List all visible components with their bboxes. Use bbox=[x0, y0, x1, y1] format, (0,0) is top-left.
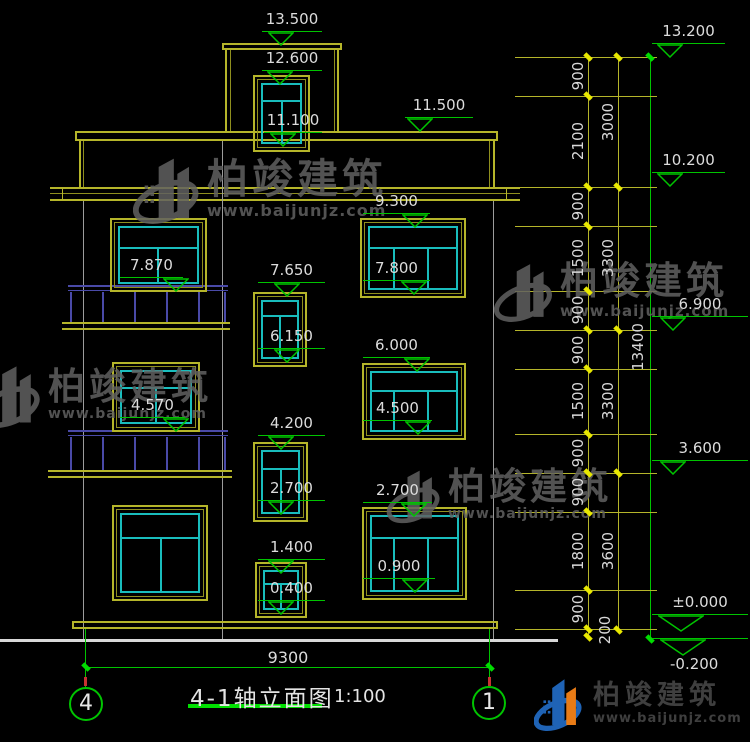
label: 1.400 bbox=[258, 539, 325, 556]
triangle-symbol-icon bbox=[274, 283, 300, 297]
label: 柏竣建筑 bbox=[207, 158, 387, 201]
label: 6.150 bbox=[258, 328, 325, 345]
line bbox=[658, 45, 682, 57]
line bbox=[70, 292, 72, 322]
watermark: 柏竣建筑 www.baijunjz.com bbox=[133, 150, 387, 228]
watermark-logo-icon bbox=[494, 256, 556, 326]
elev-marker: 12.600 bbox=[262, 50, 322, 67]
label: 4.570 bbox=[120, 397, 185, 414]
line bbox=[198, 292, 200, 322]
text-block: 柏竣建筑 www.baijunjz.com bbox=[207, 158, 387, 220]
axis-bubble-4: 4 bbox=[69, 687, 103, 721]
text-block: 柏竣建筑 www.baijunjz.com bbox=[593, 681, 742, 726]
line bbox=[72, 627, 498, 629]
line bbox=[406, 422, 430, 434]
line bbox=[403, 215, 427, 227]
line bbox=[588, 57, 589, 637]
line bbox=[269, 33, 293, 45]
line bbox=[84, 677, 87, 686]
dim-value: 900 bbox=[569, 478, 587, 507]
triangle-symbol-icon bbox=[660, 461, 686, 475]
line bbox=[543, 706, 546, 709]
line bbox=[408, 119, 432, 131]
dimension-tick bbox=[613, 52, 623, 62]
dimension-tick bbox=[81, 662, 91, 672]
line bbox=[62, 187, 63, 201]
line bbox=[164, 419, 188, 431]
label: 12.600 bbox=[262, 50, 322, 67]
label: -0.200 bbox=[670, 656, 718, 673]
label: 4.500 bbox=[363, 400, 432, 417]
line bbox=[496, 621, 498, 629]
line bbox=[225, 50, 227, 131]
line bbox=[658, 174, 682, 186]
elev-marker: 6.150 bbox=[258, 328, 325, 345]
elev-marker: 6.000 bbox=[363, 337, 430, 354]
elev-marker: 9.300 bbox=[363, 193, 430, 210]
dim-value: 900 bbox=[569, 595, 587, 624]
line bbox=[159, 159, 174, 218]
dim-value: 900 bbox=[569, 192, 587, 221]
triangle-symbol-icon bbox=[660, 317, 686, 331]
elev-marker: 0.900 bbox=[363, 558, 435, 575]
line bbox=[83, 141, 84, 188]
label: 柏竣建筑 bbox=[593, 681, 742, 711]
dim-value: 3000 bbox=[599, 103, 617, 141]
line bbox=[489, 141, 490, 188]
bottom-dim-value: 9300 bbox=[258, 648, 318, 667]
drawing-scale: 1:100 bbox=[334, 686, 386, 707]
level-marker: 3.600 bbox=[652, 440, 748, 457]
dimension-tick bbox=[583, 429, 593, 439]
triangle-symbol-icon bbox=[268, 501, 294, 515]
line bbox=[372, 390, 456, 392]
line bbox=[340, 43, 342, 50]
triangle-symbol-icon bbox=[270, 133, 296, 147]
dimension-tick bbox=[583, 632, 593, 642]
label: 2.700 bbox=[258, 480, 325, 497]
label: 10.200 bbox=[652, 152, 725, 169]
line bbox=[75, 131, 77, 141]
elev-marker: 1.400 bbox=[258, 539, 325, 556]
line bbox=[151, 193, 155, 197]
line bbox=[79, 141, 81, 188]
line bbox=[618, 57, 619, 630]
label: 6.000 bbox=[363, 337, 430, 354]
dimension-tick bbox=[583, 52, 593, 62]
line bbox=[68, 435, 228, 436]
label: 7.800 bbox=[363, 260, 430, 277]
dim-value: 200 bbox=[596, 616, 614, 645]
dimension-tick bbox=[645, 52, 655, 62]
dimension-tick bbox=[645, 634, 655, 644]
triangle-symbol-icon bbox=[405, 421, 431, 435]
triangle-symbol-icon bbox=[657, 173, 683, 187]
line bbox=[533, 271, 543, 316]
line bbox=[164, 279, 188, 291]
line bbox=[166, 437, 168, 470]
elev-marker: 11.100 bbox=[264, 112, 322, 129]
window-glass bbox=[118, 226, 199, 284]
line bbox=[2, 366, 16, 422]
dim-value: 900 bbox=[569, 336, 587, 365]
line bbox=[70, 437, 72, 470]
label: 0.900 bbox=[363, 558, 435, 575]
line bbox=[151, 200, 155, 204]
line bbox=[269, 561, 293, 573]
label: 1 bbox=[482, 690, 496, 715]
dim-value: 3300 bbox=[599, 239, 617, 277]
elev-marker: 0.400 bbox=[258, 580, 325, 597]
line bbox=[20, 374, 31, 422]
line bbox=[269, 602, 293, 614]
label: 0.400 bbox=[258, 580, 325, 597]
line bbox=[102, 292, 104, 322]
watermark-logo-icon bbox=[0, 358, 44, 432]
elev-marker: 11.500 bbox=[405, 97, 473, 114]
line bbox=[650, 57, 651, 639]
line bbox=[337, 50, 339, 131]
line bbox=[224, 292, 226, 322]
triangle-symbol-icon bbox=[402, 579, 428, 593]
triangle-symbol-icon bbox=[658, 615, 704, 632]
dimension-tick bbox=[583, 182, 593, 192]
line bbox=[269, 502, 293, 514]
dimension-tick bbox=[485, 662, 495, 672]
label: 13.200 bbox=[652, 23, 725, 40]
company-logo: 柏竣建筑 www.baijunjz.com bbox=[534, 674, 742, 732]
line bbox=[496, 131, 498, 141]
line bbox=[548, 711, 551, 714]
ground-line bbox=[0, 639, 558, 642]
triangle-symbol-icon bbox=[401, 503, 427, 517]
label: 7.870 bbox=[120, 257, 183, 274]
label: 11.500 bbox=[405, 97, 473, 114]
elev-marker: 4.570 bbox=[120, 397, 185, 414]
elev-marker: 7.650 bbox=[258, 262, 325, 279]
line bbox=[403, 580, 427, 592]
dim-value: 1500 bbox=[569, 382, 587, 420]
line bbox=[222, 43, 224, 50]
line bbox=[48, 476, 232, 478]
line bbox=[62, 328, 230, 330]
line bbox=[543, 700, 546, 703]
line bbox=[506, 187, 507, 201]
triangle-symbol-icon bbox=[274, 349, 300, 363]
triangle-symbol-icon bbox=[402, 214, 428, 228]
watermark-logo-icon bbox=[133, 150, 203, 228]
elev-marker: 7.800 bbox=[363, 260, 430, 277]
triangle-symbol-icon bbox=[401, 281, 427, 295]
line bbox=[62, 322, 230, 324]
line bbox=[659, 616, 703, 631]
line bbox=[402, 282, 426, 294]
dim-value: 3300 bbox=[599, 382, 617, 420]
elev-marker: 2.700 bbox=[363, 482, 432, 499]
line bbox=[517, 264, 530, 317]
label: ±0.000 bbox=[652, 594, 748, 611]
line bbox=[145, 200, 149, 204]
level-marker: 10.200 bbox=[652, 152, 725, 169]
triangle-symbol-icon bbox=[268, 601, 294, 615]
window-left-1f bbox=[112, 505, 208, 601]
line bbox=[102, 437, 104, 470]
dimension-tick bbox=[613, 325, 623, 335]
line bbox=[548, 706, 551, 709]
label: 4.200 bbox=[258, 415, 325, 432]
triangle-symbol-icon bbox=[163, 278, 189, 292]
triangle-symbol-icon bbox=[163, 418, 189, 432]
elev-marker: 7.870 bbox=[120, 257, 183, 274]
dim-value: 3600 bbox=[599, 532, 617, 570]
dim-value: 2100 bbox=[569, 122, 587, 160]
window-left-3f bbox=[110, 218, 207, 292]
dimension-tick bbox=[583, 221, 593, 231]
dim-value: 900 bbox=[569, 62, 587, 91]
label: www.baijunjz.com bbox=[207, 201, 387, 220]
line bbox=[405, 359, 429, 371]
dimension-tick bbox=[583, 364, 593, 374]
elev-marker: 13.500 bbox=[262, 11, 322, 28]
line bbox=[145, 186, 149, 190]
line bbox=[548, 700, 551, 703]
axis-bubble-1: 1 bbox=[472, 686, 506, 720]
line bbox=[230, 50, 231, 131]
triangle-symbol-icon bbox=[657, 44, 683, 58]
line bbox=[543, 711, 546, 714]
line bbox=[134, 292, 136, 322]
line bbox=[160, 537, 162, 591]
drawing-title: 4-1轴立面图 bbox=[190, 679, 334, 713]
dimension-tick bbox=[583, 91, 593, 101]
line bbox=[661, 318, 685, 330]
dimension-tick bbox=[613, 182, 623, 192]
dim-value: 1500 bbox=[569, 239, 587, 277]
label: 2.700 bbox=[363, 482, 432, 499]
elev-marker: 2.700 bbox=[258, 480, 325, 497]
line bbox=[552, 679, 564, 725]
line bbox=[145, 193, 149, 197]
line bbox=[661, 640, 705, 655]
level-marker: 13.200 bbox=[652, 23, 725, 40]
line bbox=[661, 462, 685, 474]
dimension-tick bbox=[583, 585, 593, 595]
line bbox=[566, 687, 576, 725]
dim-value-overall: 13400 bbox=[629, 323, 647, 371]
line bbox=[224, 437, 226, 470]
elevation-drawing: 13.500 12.600 11.100 11.500 9.300 7.870 … bbox=[0, 0, 750, 742]
triangle-symbol-icon bbox=[268, 436, 294, 450]
line bbox=[72, 621, 74, 629]
triangle-symbol-icon bbox=[268, 560, 294, 574]
label: 13.500 bbox=[262, 11, 322, 28]
line bbox=[271, 134, 295, 146]
label: 7.650 bbox=[258, 262, 325, 279]
line bbox=[268, 72, 292, 84]
line bbox=[402, 504, 426, 516]
dimension-tick bbox=[613, 625, 623, 635]
label: 6.900 bbox=[652, 296, 748, 313]
line bbox=[198, 437, 200, 470]
elev-marker: 4.500 bbox=[363, 400, 432, 417]
line bbox=[86, 667, 490, 668]
dimension-tick bbox=[583, 325, 593, 335]
level-marker: ±0.000 bbox=[652, 594, 748, 611]
line bbox=[134, 437, 136, 470]
dim-value: 900 bbox=[569, 296, 587, 325]
company-logo-icon bbox=[534, 674, 588, 732]
line bbox=[488, 677, 491, 686]
label: 4 bbox=[79, 691, 93, 716]
line bbox=[275, 284, 299, 296]
triangle-symbol-icon bbox=[404, 358, 430, 372]
label: 9.300 bbox=[363, 193, 430, 210]
text-block: 柏竣建筑 www.baijunjz.com bbox=[48, 368, 212, 423]
line bbox=[275, 350, 299, 362]
line bbox=[334, 50, 335, 131]
triangle-symbol-icon bbox=[407, 118, 433, 132]
line bbox=[177, 167, 189, 218]
label: 11.100 bbox=[264, 112, 322, 129]
elev-marker: 4.200 bbox=[258, 415, 325, 432]
line bbox=[370, 247, 456, 249]
line bbox=[48, 470, 232, 472]
label: 3.600 bbox=[652, 440, 748, 457]
label: www.baijunjz.com bbox=[593, 711, 742, 726]
dimension-tick bbox=[613, 468, 623, 478]
line bbox=[72, 621, 498, 623]
dim-value: 1800 bbox=[569, 532, 587, 570]
triangle-symbol-icon bbox=[267, 71, 293, 85]
line bbox=[372, 537, 457, 539]
line bbox=[151, 186, 155, 190]
dim-value: 900 bbox=[569, 439, 587, 468]
line bbox=[493, 141, 495, 188]
triangle-symbol-icon bbox=[660, 639, 706, 656]
window-glass bbox=[120, 513, 200, 593]
line bbox=[269, 437, 293, 449]
triangle-symbol-icon bbox=[268, 32, 294, 46]
line bbox=[166, 292, 168, 322]
level-marker: 6.900 bbox=[652, 296, 748, 313]
